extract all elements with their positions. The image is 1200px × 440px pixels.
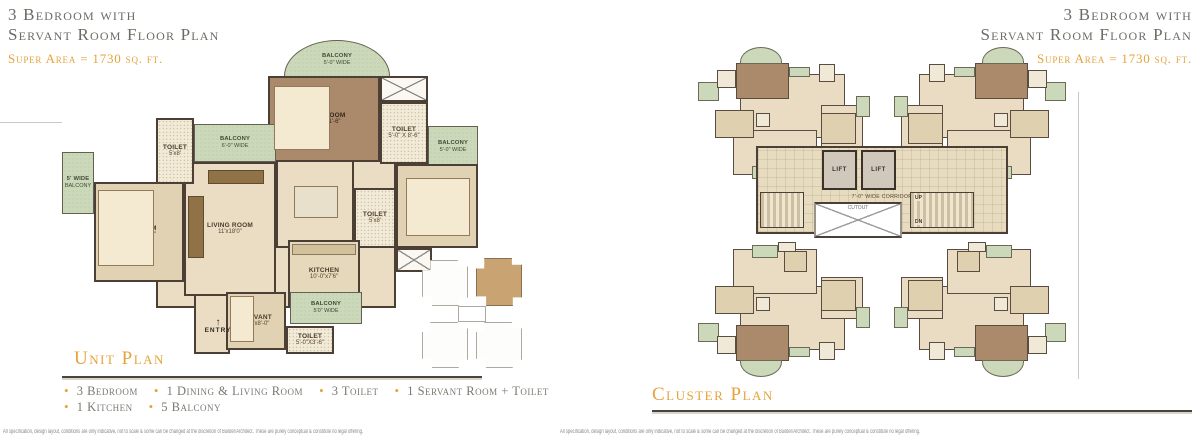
brochure-page: 3 Bedroom with Servant Room Floor Plan S… bbox=[0, 0, 1200, 440]
room-balcony-top: BALCONY5'-0" WIDE bbox=[284, 40, 390, 80]
bullet-icon: • bbox=[149, 399, 154, 414]
feature-item: • 3 Bedroom bbox=[64, 384, 138, 398]
cutout-label: CUTOUT bbox=[816, 205, 900, 211]
lift-2: LIFT bbox=[861, 150, 896, 190]
key-plan-wing-bottom-left bbox=[422, 322, 468, 368]
cluster-block-balc bbox=[698, 82, 719, 100]
cluster-block-balc bbox=[954, 67, 975, 77]
key-plan-wing-top-left bbox=[422, 260, 468, 306]
left-title-line1: 3 Bedroom with bbox=[8, 5, 220, 25]
cluster-block-balc bbox=[1045, 323, 1066, 341]
key-plan-wing-bottom-right bbox=[476, 322, 522, 368]
cluster-block-toil bbox=[779, 242, 797, 252]
cluster-block-dark bbox=[821, 113, 856, 144]
cluster-block-balc bbox=[986, 245, 1012, 258]
room-toilet-upper-left: TOILET5'x8' bbox=[156, 118, 194, 184]
features-row-2: • 1 Kitchen• 5 Balcony bbox=[64, 399, 565, 415]
cluster-block-toil bbox=[968, 242, 986, 252]
furniture-bed bbox=[98, 190, 154, 266]
cluster-plan: 7'-0" WIDE CORRIDOR LIFT LIFT CUTOUT UP … bbox=[690, 46, 1074, 378]
bullet-icon: • bbox=[64, 399, 69, 414]
cluster-block-toil bbox=[1028, 336, 1047, 354]
page-fold-line-horizontal bbox=[0, 122, 62, 123]
right-title-line2: Servant Room Floor Plan bbox=[980, 25, 1192, 45]
room-balcony-upper-left: BALCONY6'-0" WIDE bbox=[194, 124, 276, 162]
entry-label: ENTRY bbox=[198, 327, 238, 334]
cluster-block-dark bbox=[957, 251, 980, 272]
stairs-dn-label: DN bbox=[914, 219, 923, 225]
cluster-block-dark bbox=[1010, 110, 1049, 138]
cluster-wing-bottom-left bbox=[694, 238, 870, 378]
cluster-block-toil bbox=[819, 342, 835, 360]
features-list: • 3 Bedroom• 1 Dining & Living Room• 3 T… bbox=[64, 383, 565, 415]
cluster-block-master bbox=[975, 325, 1028, 361]
lift-1-label: LIFT bbox=[832, 167, 847, 173]
cluster-block-master bbox=[736, 63, 789, 99]
cluster-block-toil bbox=[717, 336, 736, 354]
cluster-block-dark bbox=[715, 110, 754, 138]
key-plan-wing-top-right bbox=[476, 258, 522, 306]
cluster-block-toil bbox=[994, 113, 1008, 127]
cluster-plan-title: Cluster Plan bbox=[652, 384, 774, 406]
cluster-block-balc bbox=[856, 96, 870, 117]
feature-item: • 5 Balcony bbox=[149, 400, 221, 414]
cluster-block-balc bbox=[982, 360, 1024, 377]
cluster-block-dark bbox=[715, 286, 754, 314]
cluster-block-balc bbox=[740, 360, 782, 377]
staircase-left bbox=[760, 192, 804, 228]
room-shaft-top bbox=[380, 76, 428, 102]
disclaimer-left: All specification, design layout, condit… bbox=[3, 429, 363, 435]
cluster-block-toil bbox=[819, 64, 835, 82]
cluster-plan-rule bbox=[652, 410, 1192, 412]
furniture-counter bbox=[292, 244, 356, 255]
room-toilet-mid: TOILET5'x8' bbox=[354, 188, 396, 248]
furniture-table bbox=[294, 186, 338, 218]
entry-arrow-icon: ↑ bbox=[198, 318, 238, 327]
cluster-block-master bbox=[736, 325, 789, 361]
feature-item: • 1 Dining & Living Room bbox=[154, 384, 303, 398]
feature-item: • 1 Kitchen bbox=[64, 400, 133, 414]
unit-plan-rooms: BALCONY5'-0" WIDEM.BEDROOM14'-0"x11'-6"T… bbox=[62, 40, 480, 358]
cluster-block-toil bbox=[929, 64, 945, 82]
furniture-sofa bbox=[208, 170, 264, 184]
furniture-sofa bbox=[188, 196, 204, 258]
cluster-block-toil bbox=[756, 297, 770, 311]
unit-plan: BALCONY5'-0" WIDEM.BEDROOM14'-0"x11'-6"T… bbox=[62, 40, 480, 358]
cluster-block-toil bbox=[756, 113, 770, 127]
key-plan bbox=[420, 256, 524, 372]
room-balcony-bottom: BALCONY5'0" WIDE bbox=[290, 292, 362, 324]
cutout: CUTOUT bbox=[814, 202, 902, 238]
furniture-bed bbox=[406, 178, 470, 236]
feature-item: • 1 Servant Room + Toilet bbox=[395, 384, 549, 398]
cluster-block-toil bbox=[1028, 70, 1047, 88]
cluster-block-balc bbox=[894, 96, 908, 117]
cluster-block-dark bbox=[784, 251, 807, 272]
room-balcony-left: 5' WIDEBALCONY bbox=[62, 152, 94, 214]
room-toilet-master: TOILET5'-0" X 8'-6" bbox=[380, 102, 428, 164]
cluster-block-balc bbox=[894, 307, 908, 328]
staircase-right: UP DN bbox=[910, 192, 974, 228]
cluster-block-balc bbox=[698, 323, 719, 341]
cluster-block-balc bbox=[954, 347, 975, 357]
right-title-line1: 3 Bedroom with bbox=[980, 5, 1192, 25]
furniture-bed bbox=[274, 86, 330, 150]
cluster-block-balc bbox=[1045, 82, 1066, 100]
cluster-block-toil bbox=[994, 297, 1008, 311]
lift-1: LIFT bbox=[822, 150, 857, 190]
cluster-wing-bottom-right bbox=[894, 238, 1070, 378]
cluster-block-dark bbox=[821, 280, 856, 311]
page-fold-line-vertical bbox=[1078, 92, 1079, 379]
bullet-icon: • bbox=[395, 383, 400, 398]
cluster-block-master bbox=[975, 63, 1028, 99]
feature-item: • 3 Toilet bbox=[319, 384, 378, 398]
unit-plan-title: Unit Plan bbox=[74, 348, 165, 370]
lift-2-label: LIFT bbox=[871, 167, 886, 173]
bullet-icon: • bbox=[319, 383, 324, 398]
room-balcony-right: BALCONY5'-0" WIDE bbox=[428, 126, 478, 168]
cluster-block-balc bbox=[982, 47, 1024, 64]
cluster-block-dark bbox=[1010, 286, 1049, 314]
disclaimer-right: All specification, design layout, condit… bbox=[560, 429, 920, 435]
cluster-block-balc bbox=[856, 307, 870, 328]
key-plan-wing-center bbox=[458, 306, 486, 322]
cluster-block-dark bbox=[908, 113, 943, 144]
cluster-block-balc bbox=[752, 245, 778, 258]
unit-plan-rule bbox=[62, 376, 482, 378]
cluster-block-balc bbox=[740, 47, 782, 64]
cluster-block-toil bbox=[929, 342, 945, 360]
stairs-up-label: UP bbox=[914, 195, 923, 201]
entry-marker: ↑ ENTRY bbox=[198, 318, 238, 334]
features-row-1: • 3 Bedroom• 1 Dining & Living Room• 3 T… bbox=[64, 383, 565, 399]
cluster-block-dark bbox=[908, 280, 943, 311]
bullet-icon: • bbox=[64, 383, 69, 398]
cluster-block-toil bbox=[717, 70, 736, 88]
cluster-block-balc bbox=[789, 67, 810, 77]
room-toilet-bottom: TOILET5'-0"X3'-6" bbox=[286, 326, 334, 354]
bullet-icon: • bbox=[154, 383, 159, 398]
cluster-block-balc bbox=[789, 347, 810, 357]
